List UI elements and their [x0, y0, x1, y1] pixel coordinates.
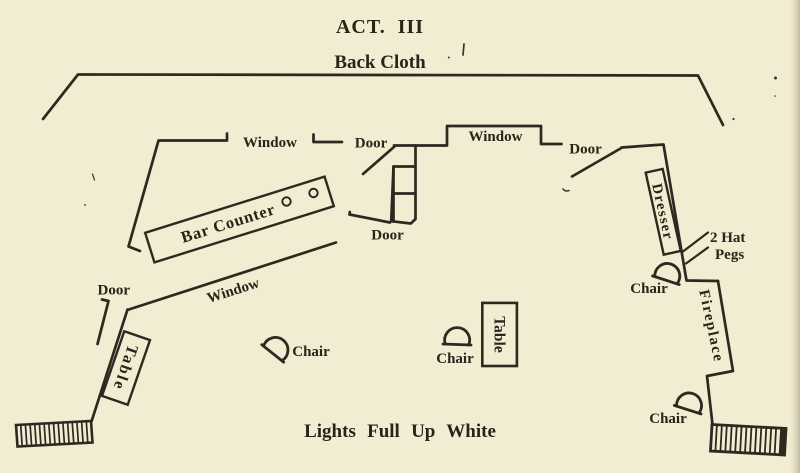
svg-text:Door: Door: [355, 136, 388, 152]
svg-text:Window: Window: [243, 135, 297, 151]
svg-text:Door: Door: [371, 228, 404, 244]
svg-text:Door: Door: [98, 283, 131, 299]
svg-text:Chair: Chair: [292, 344, 330, 360]
svg-text:ACT. III: ACT. III: [336, 16, 424, 38]
svg-text:Lights Full Up White: Lights Full Up White: [304, 421, 496, 442]
svg-text:Chair: Chair: [436, 351, 474, 367]
svg-text:Chair: Chair: [649, 411, 687, 427]
svg-text:Back Cloth: Back Cloth: [334, 52, 426, 73]
svg-text:2 Hat: 2 Hat: [710, 230, 745, 246]
svg-text:Door: Door: [569, 142, 602, 158]
svg-text:Window: Window: [469, 129, 523, 145]
svg-text:Chair: Chair: [630, 281, 668, 297]
svg-text:Pegs: Pegs: [715, 247, 744, 263]
svg-text:Table: Table: [491, 316, 508, 353]
